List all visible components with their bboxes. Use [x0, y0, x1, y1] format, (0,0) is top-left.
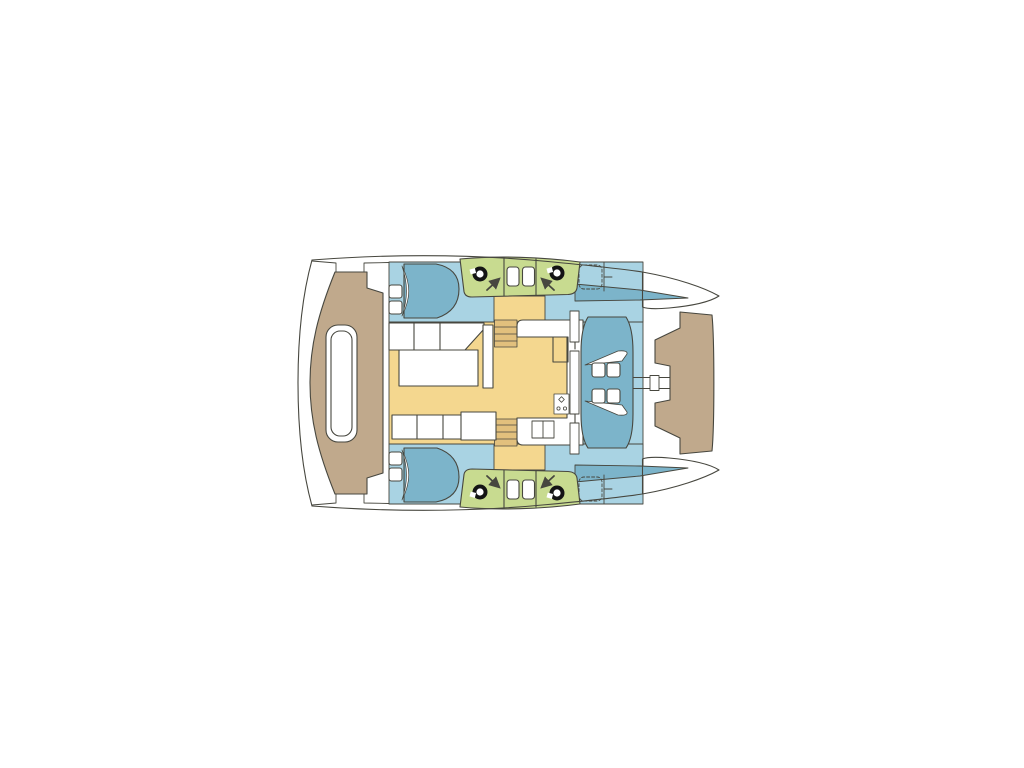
- berth-pillow: [389, 301, 402, 314]
- forward-bulkhead-wall: [570, 311, 579, 454]
- companionway-steps: [495, 320, 518, 347]
- screenshot-canvas: [0, 0, 1024, 768]
- foredeck: [655, 312, 714, 454]
- cockpit-seat: [592, 363, 605, 377]
- catamaran-floor-plan: [0, 0, 1024, 768]
- settee-end-panel: [483, 325, 493, 388]
- companionway-passage: [494, 296, 545, 322]
- cockpit-seat: [592, 389, 605, 403]
- anchor-fitting: [650, 376, 659, 391]
- stove-icon: [554, 394, 569, 414]
- saloon-table: [399, 350, 478, 386]
- cockpit-seat: [607, 363, 620, 377]
- aft-settee: [392, 412, 496, 440]
- berth-pillow: [389, 285, 402, 298]
- aft-settee-end-seat: [461, 412, 496, 440]
- cockpit-seat: [607, 389, 620, 403]
- deck-band-inner-line: [312, 261, 389, 272]
- sink-icon: [532, 421, 554, 438]
- deck-hatch: [523, 267, 535, 286]
- port-aft-berth: [404, 264, 459, 318]
- deck-hatch: [507, 267, 519, 286]
- cockpit-bench-unit: [581, 317, 633, 448]
